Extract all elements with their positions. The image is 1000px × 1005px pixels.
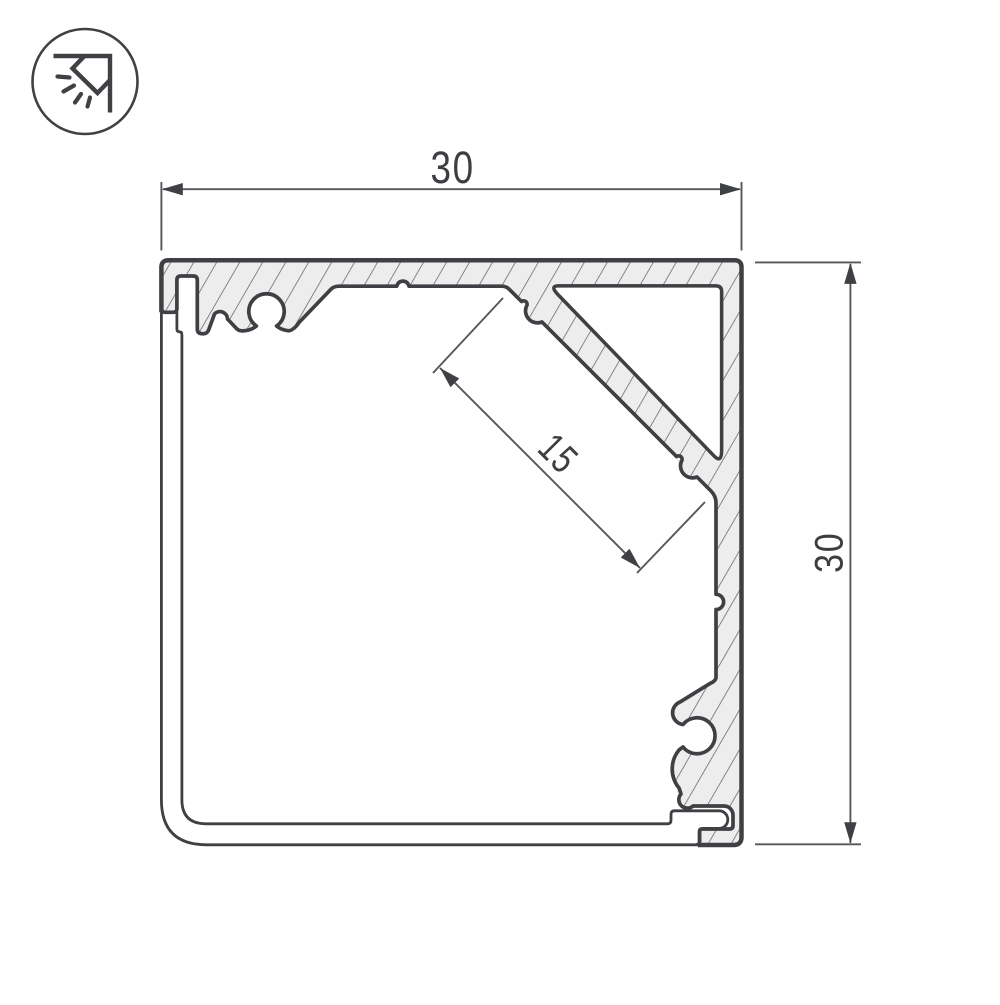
svg-text:15: 15 (530, 425, 588, 483)
svg-text:30: 30 (806, 532, 851, 573)
svg-text:30: 30 (430, 142, 474, 193)
